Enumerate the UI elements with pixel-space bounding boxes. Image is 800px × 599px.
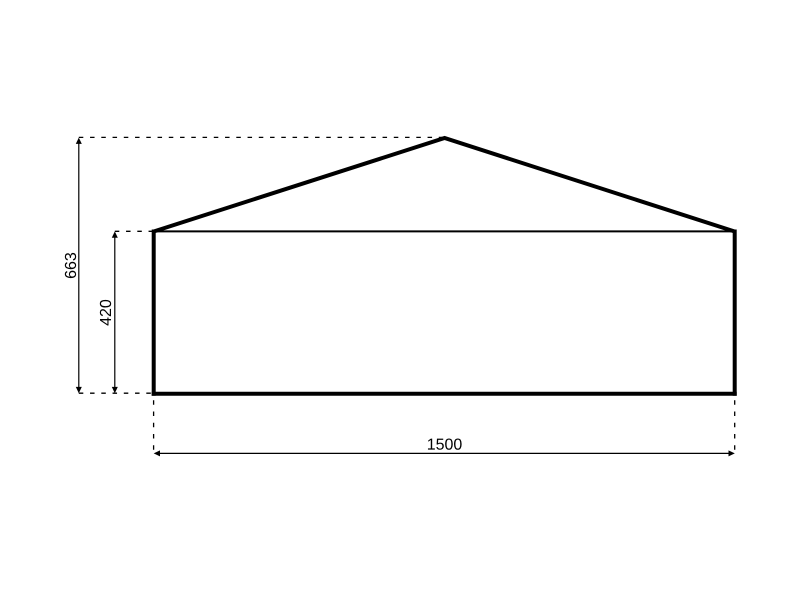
svg-text:1500: 1500 — [427, 437, 463, 454]
svg-text:663: 663 — [63, 252, 80, 279]
svg-text:420: 420 — [98, 299, 115, 326]
